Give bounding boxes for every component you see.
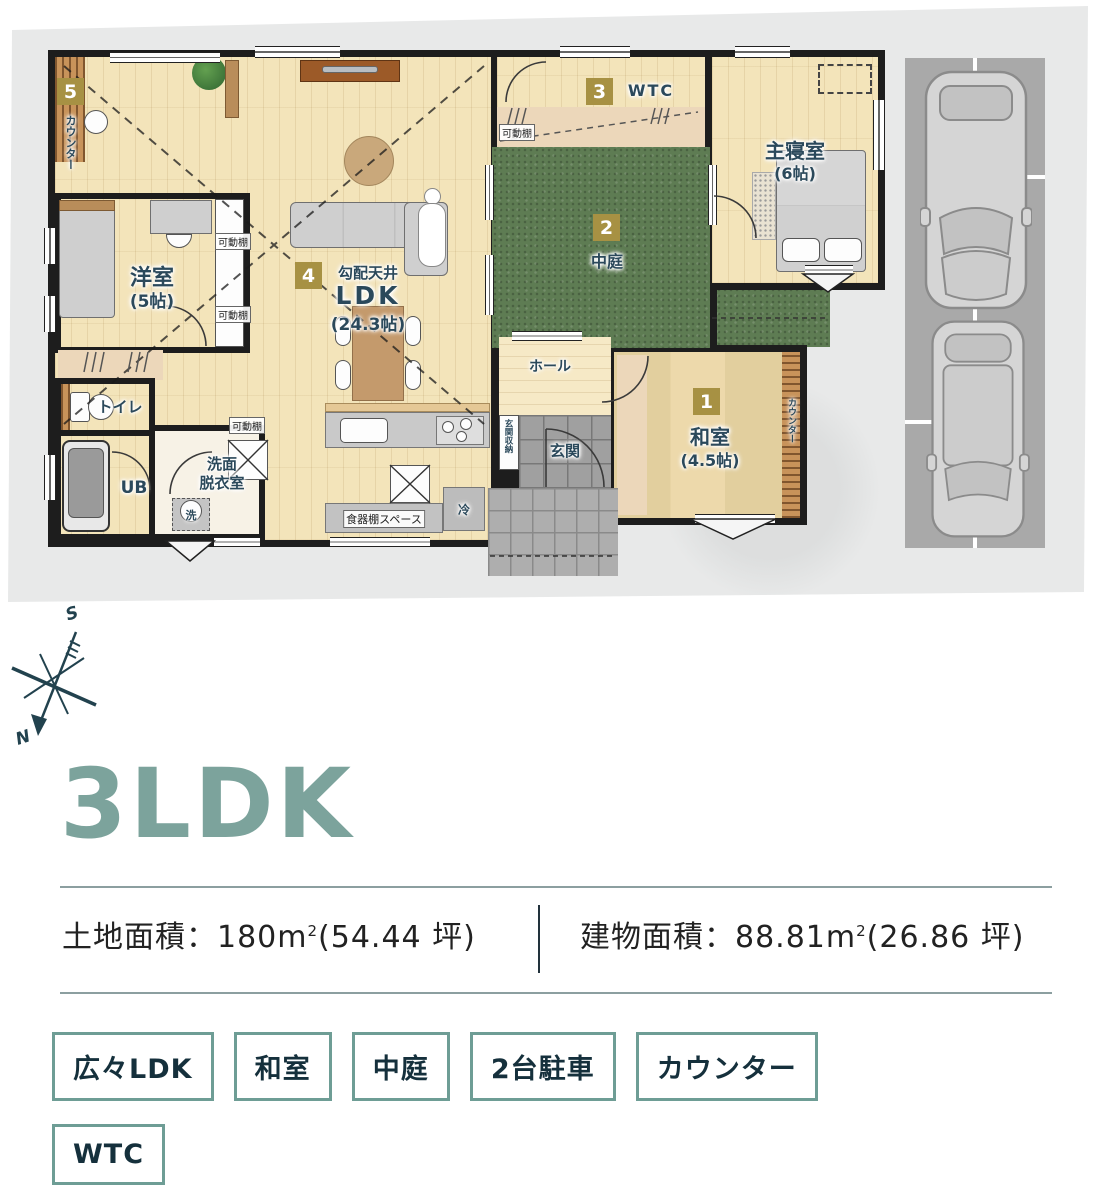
feature-tag-parking: 2台駐車 xyxy=(470,1032,616,1101)
desk xyxy=(150,200,212,234)
movable-shelf-chip: 可動棚 xyxy=(229,417,265,434)
hall-label: ホール xyxy=(529,356,571,376)
compass-north-label: N xyxy=(13,726,33,749)
bed-headboard xyxy=(59,200,115,211)
kitchen-island xyxy=(390,465,430,503)
compass-rose xyxy=(12,632,96,736)
feature-tag-wtc: WTC xyxy=(52,1124,165,1185)
ldk-size: (24.3帖) xyxy=(331,310,405,335)
toilet-label: トイレ xyxy=(97,396,142,417)
single-bed xyxy=(59,200,115,318)
hall-floor xyxy=(499,337,611,417)
counter-right-label: カウンター xyxy=(785,398,798,443)
hall-courtyard-window xyxy=(512,331,582,341)
western-room-shelf-column xyxy=(215,199,244,347)
bedside-rug xyxy=(752,172,776,240)
kitchen-sink xyxy=(340,418,388,443)
badge-1: 1 xyxy=(693,388,720,415)
movable-shelf-chip: 可動棚 xyxy=(499,124,535,141)
movable-shelf-chip: 可動棚 xyxy=(215,306,251,323)
window xyxy=(735,46,790,58)
ldk-label: LDK xyxy=(335,281,400,310)
feature-tag-ldk: 広々LDK xyxy=(52,1032,214,1101)
toilet-accent-wall xyxy=(61,384,70,430)
window xyxy=(560,46,630,58)
divider xyxy=(60,886,1052,888)
entrance-label: 玄関 xyxy=(550,440,580,461)
feature-tag-counter: カウンター xyxy=(636,1032,818,1101)
toilet-tank xyxy=(70,392,90,422)
badge-2: 2 xyxy=(593,214,620,241)
burner xyxy=(460,418,472,430)
burner xyxy=(442,421,454,433)
plan-title: 3LDK xyxy=(60,756,354,852)
pillow xyxy=(782,238,820,262)
dish-shelf-label: 食器棚スペース xyxy=(343,510,425,528)
washroom-door-window xyxy=(214,537,260,547)
bathtub-inner xyxy=(68,448,104,518)
feature-tag-row-1: 広々LDK 和室 中庭 2台駐車 カウンター xyxy=(52,1032,833,1101)
window xyxy=(44,455,56,500)
window xyxy=(873,100,885,170)
divider xyxy=(60,992,1052,994)
ldk-ceiling-label: 勾配天井 xyxy=(338,262,398,283)
corridor-closet xyxy=(58,350,163,380)
window xyxy=(110,52,220,63)
car-top-view-2 xyxy=(923,318,1033,540)
window xyxy=(44,296,56,332)
compass-south-label: S xyxy=(63,603,81,626)
courtyard-window xyxy=(485,255,494,315)
feature-tag-courtyard: 中庭 xyxy=(352,1032,450,1101)
dining-chair xyxy=(335,360,351,390)
window xyxy=(44,228,56,264)
person-body xyxy=(418,203,446,267)
land-area-text: 土地面積：180m2(54.44 坪) xyxy=(62,912,476,956)
main-bedroom-size: (6帖) xyxy=(774,160,816,184)
bedroom-dashed-closet xyxy=(818,64,872,94)
garden-lawn xyxy=(710,287,830,347)
counter-left-label: カウンター xyxy=(62,115,78,170)
tv xyxy=(322,66,378,73)
badge-5: 5 xyxy=(57,78,84,105)
wtc-label: WTC xyxy=(628,81,674,100)
area-divider xyxy=(538,905,540,973)
window xyxy=(330,537,430,547)
movable-shelf-chip: 可動棚 xyxy=(215,233,251,250)
round-rug xyxy=(344,136,394,186)
courtyard-window xyxy=(708,165,717,225)
bedroom-window xyxy=(805,265,853,275)
counter-stool xyxy=(84,110,108,134)
floor-plan-page: 5 カウンター 洋室 (5帖) 可動棚 可動棚 4 勾配天井 LDK (24.3… xyxy=(0,0,1100,1200)
fridge-label: 冷 xyxy=(458,501,470,518)
washitsu-size: (4.5帖) xyxy=(681,447,740,471)
entrance-storage-label: 玄関収納 xyxy=(502,419,514,453)
porch-tiles xyxy=(488,488,618,576)
burner xyxy=(456,431,467,442)
badge-4: 4 xyxy=(295,262,322,289)
pillow xyxy=(824,238,862,262)
courtyard-label: 中庭 xyxy=(591,248,623,272)
dining-chair xyxy=(405,360,421,390)
feature-tag-washitsu: 和室 xyxy=(234,1032,332,1101)
kitchen-bar-top xyxy=(325,403,490,412)
badge-3: 3 xyxy=(586,78,613,105)
dining-chair xyxy=(405,316,421,346)
window xyxy=(255,46,340,58)
washroom-label-2: 脱衣室 xyxy=(199,472,244,493)
car-top-view-1 xyxy=(920,68,1032,312)
shelf-unit xyxy=(225,60,239,118)
building-area-text: 建物面積：88.81m2(26.86 坪) xyxy=(580,912,1024,956)
washitsu-closet xyxy=(617,355,647,515)
washroom-label-1: 洗面 xyxy=(207,453,237,474)
washitsu-label: 和室 xyxy=(690,421,730,450)
washitsu-window xyxy=(695,514,775,524)
western-room-size: (5帖) xyxy=(130,287,174,312)
washer-label: 洗 xyxy=(186,507,197,523)
bath-label: UB xyxy=(121,478,148,498)
courtyard-window xyxy=(485,165,494,220)
feature-tag-row-2: WTC xyxy=(52,1124,180,1185)
